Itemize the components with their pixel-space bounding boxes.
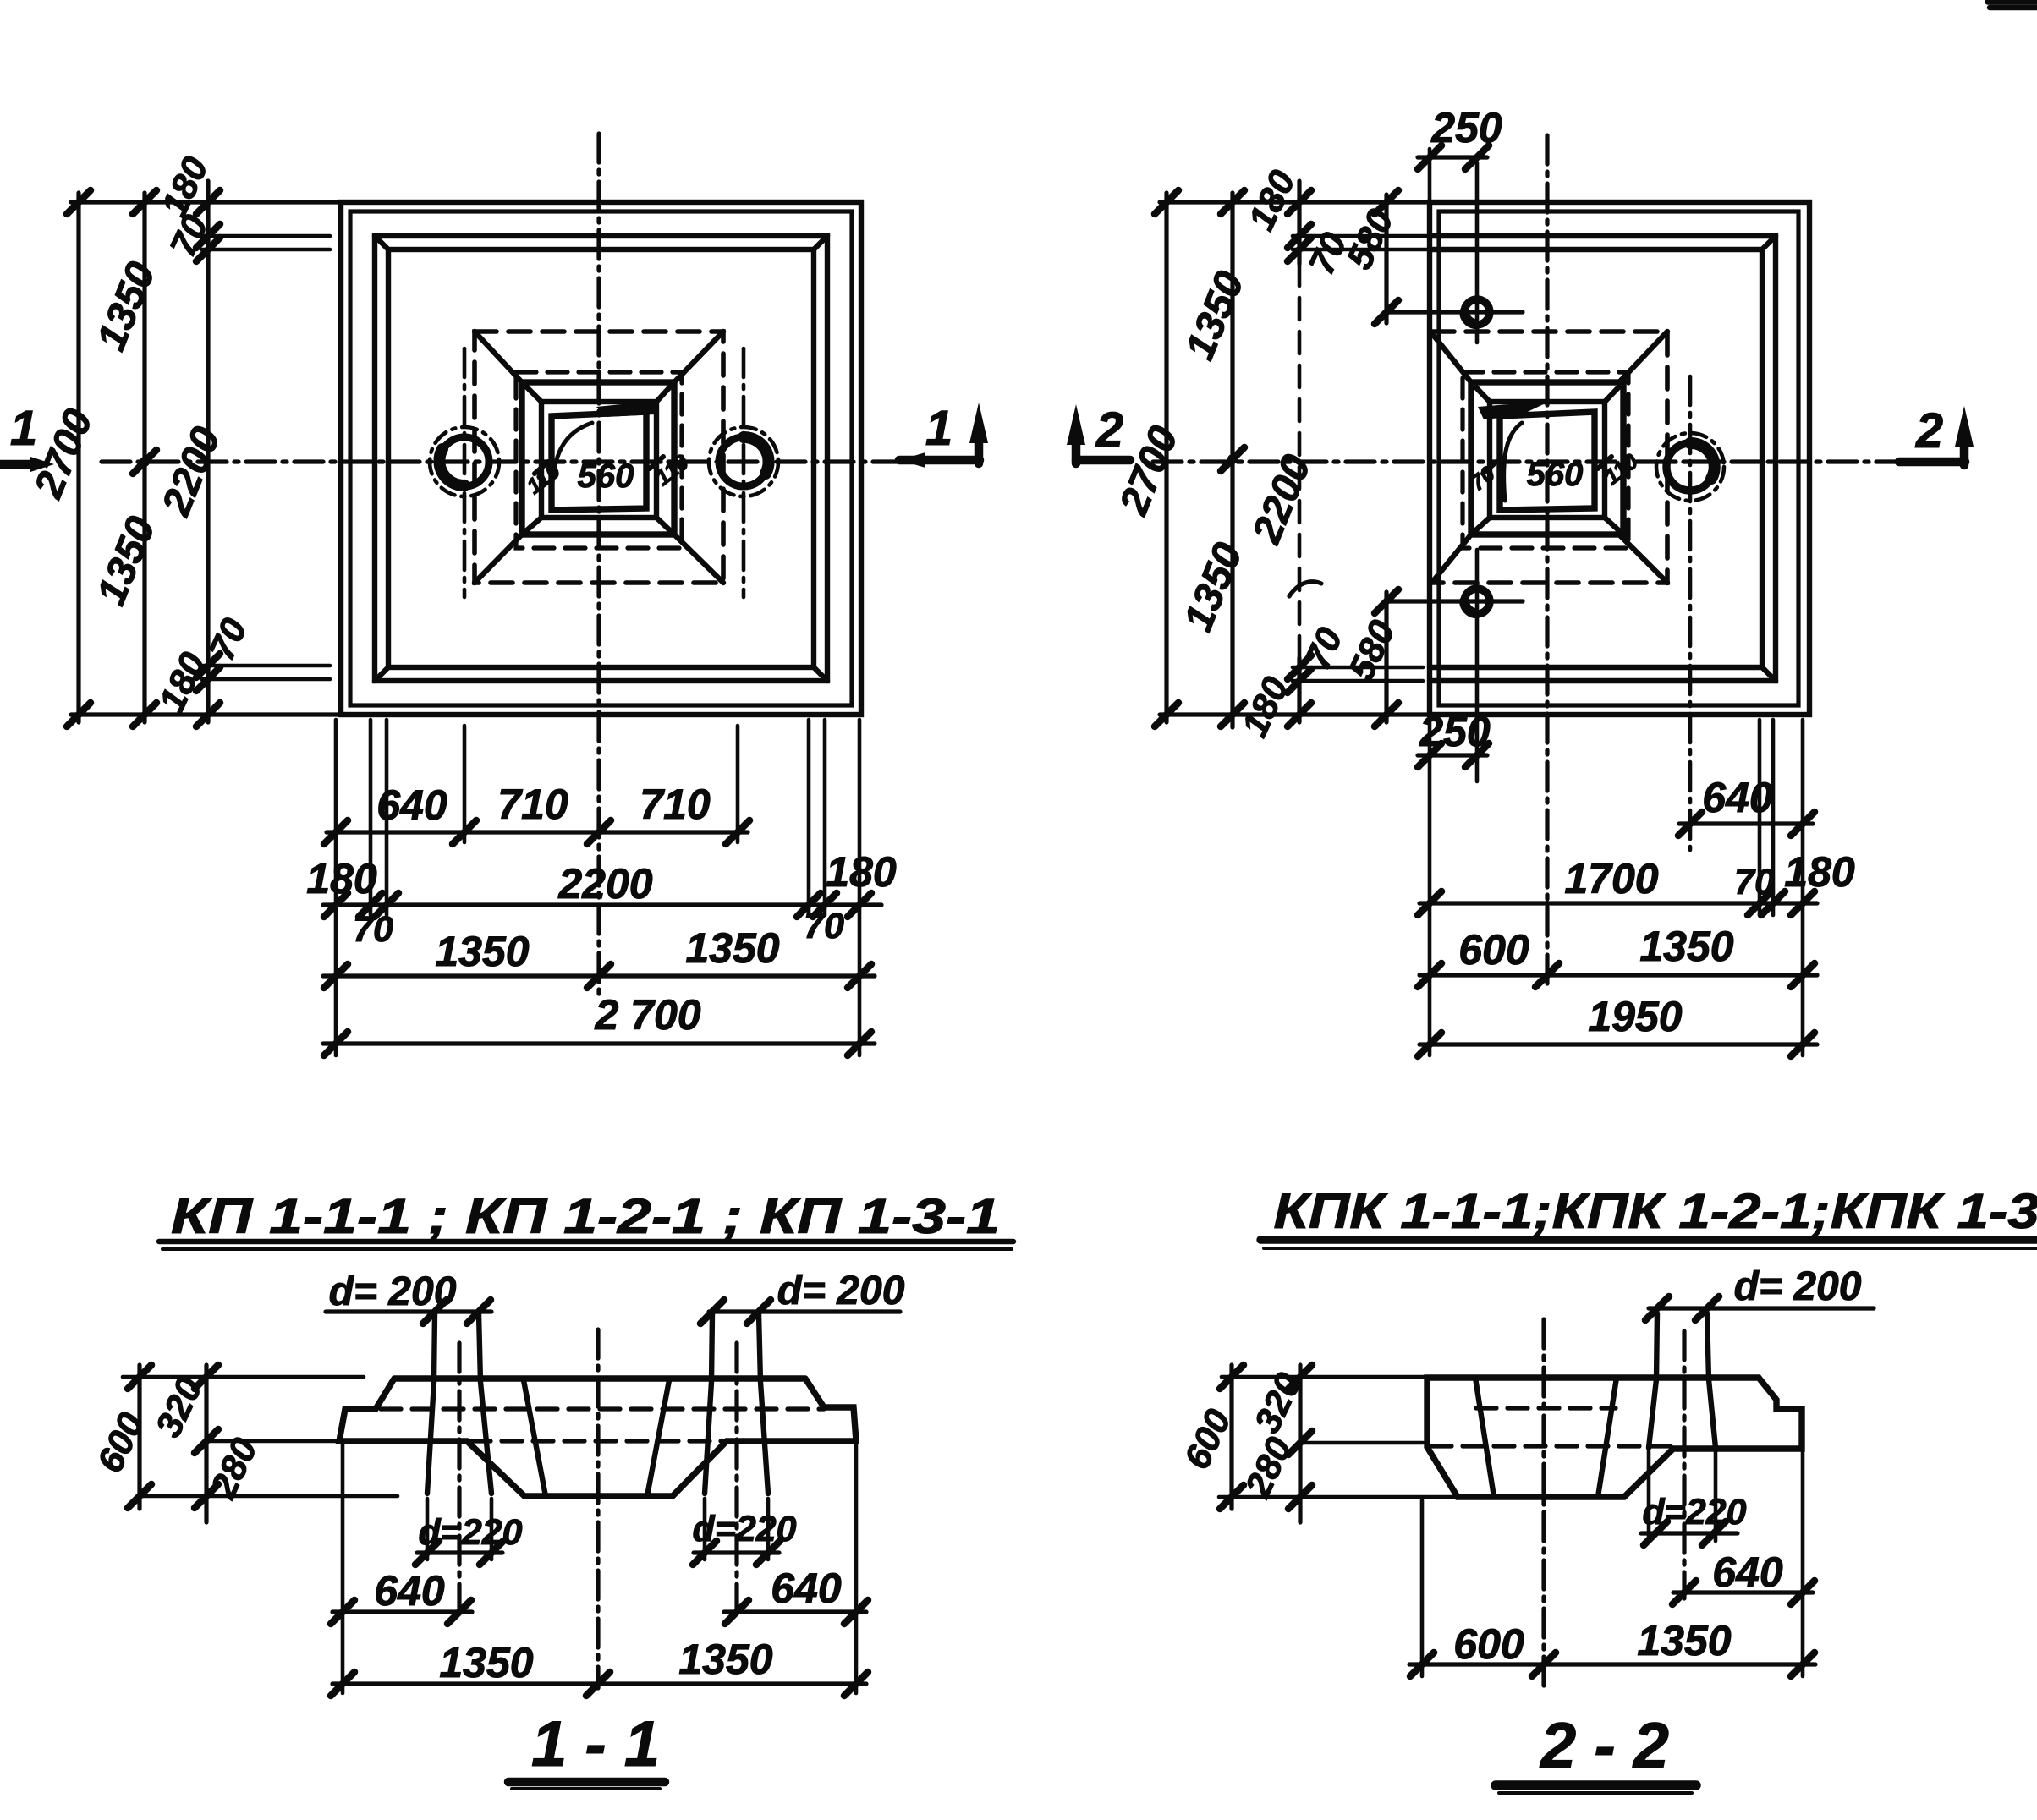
svg-text:640: 640 [1712, 1549, 1783, 1596]
svg-text:70: 70 [804, 906, 844, 946]
svg-text:180: 180 [1784, 848, 1855, 896]
svg-text:70: 70 [1734, 862, 1775, 902]
svg-text:КП 1-1-1 ; КП 1-2-1 ; КП 1-3-1: КП 1-1-1 ; КП 1-2-1 ; КП 1-3-1 [171, 1189, 1000, 1244]
svg-text:1: 1 [925, 401, 953, 456]
svg-text:1700: 1700 [1564, 855, 1658, 902]
svg-text:1350: 1350 [439, 1639, 533, 1686]
svg-text:640: 640 [1702, 774, 1773, 821]
svg-text:2 700: 2 700 [594, 991, 700, 1039]
svg-text:180: 180 [306, 855, 377, 902]
svg-text:180: 180 [826, 848, 897, 896]
svg-text:70: 70 [353, 909, 393, 950]
svg-text:d= 200: d= 200 [777, 1269, 905, 1313]
svg-text:1 - 1: 1 - 1 [531, 1708, 660, 1780]
svg-text:2200: 2200 [557, 860, 652, 907]
svg-text:250: 250 [1430, 104, 1502, 151]
svg-text:1350: 1350 [1637, 1617, 1731, 1664]
svg-text:640: 640 [771, 1565, 842, 1612]
svg-text:d=220: d=220 [1642, 1492, 1746, 1532]
svg-text:1950: 1950 [1588, 993, 1682, 1040]
svg-text:1: 1 [10, 401, 37, 456]
svg-text:640: 640 [374, 1567, 445, 1614]
svg-text:КПК 1-1-1;КПК 1-2-1;КПК 1-3-1: КПК 1-1-1;КПК 1-2-1;КПК 1-3-1 [1274, 1184, 2037, 1239]
svg-text:1350: 1350 [1639, 923, 1733, 970]
svg-text:d=220: d=220 [418, 1512, 522, 1553]
svg-text:710: 710 [640, 781, 711, 828]
svg-text:2: 2 [1915, 403, 1943, 458]
svg-text:710: 710 [497, 781, 568, 828]
svg-text:2: 2 [1095, 403, 1123, 458]
svg-text:1350: 1350 [678, 1636, 772, 1683]
svg-text:d= 200: d= 200 [1734, 1264, 1862, 1309]
svg-text:640: 640 [376, 781, 447, 829]
svg-text:d= 200: d= 200 [329, 1269, 457, 1314]
svg-text:2 - 2: 2 - 2 [1539, 1710, 1669, 1782]
svg-text:600: 600 [1458, 926, 1529, 973]
svg-text:1350: 1350 [435, 928, 529, 975]
svg-text:d=220: d=220 [692, 1509, 796, 1549]
svg-text:1350: 1350 [685, 924, 779, 972]
svg-text:600: 600 [1453, 1620, 1524, 1668]
